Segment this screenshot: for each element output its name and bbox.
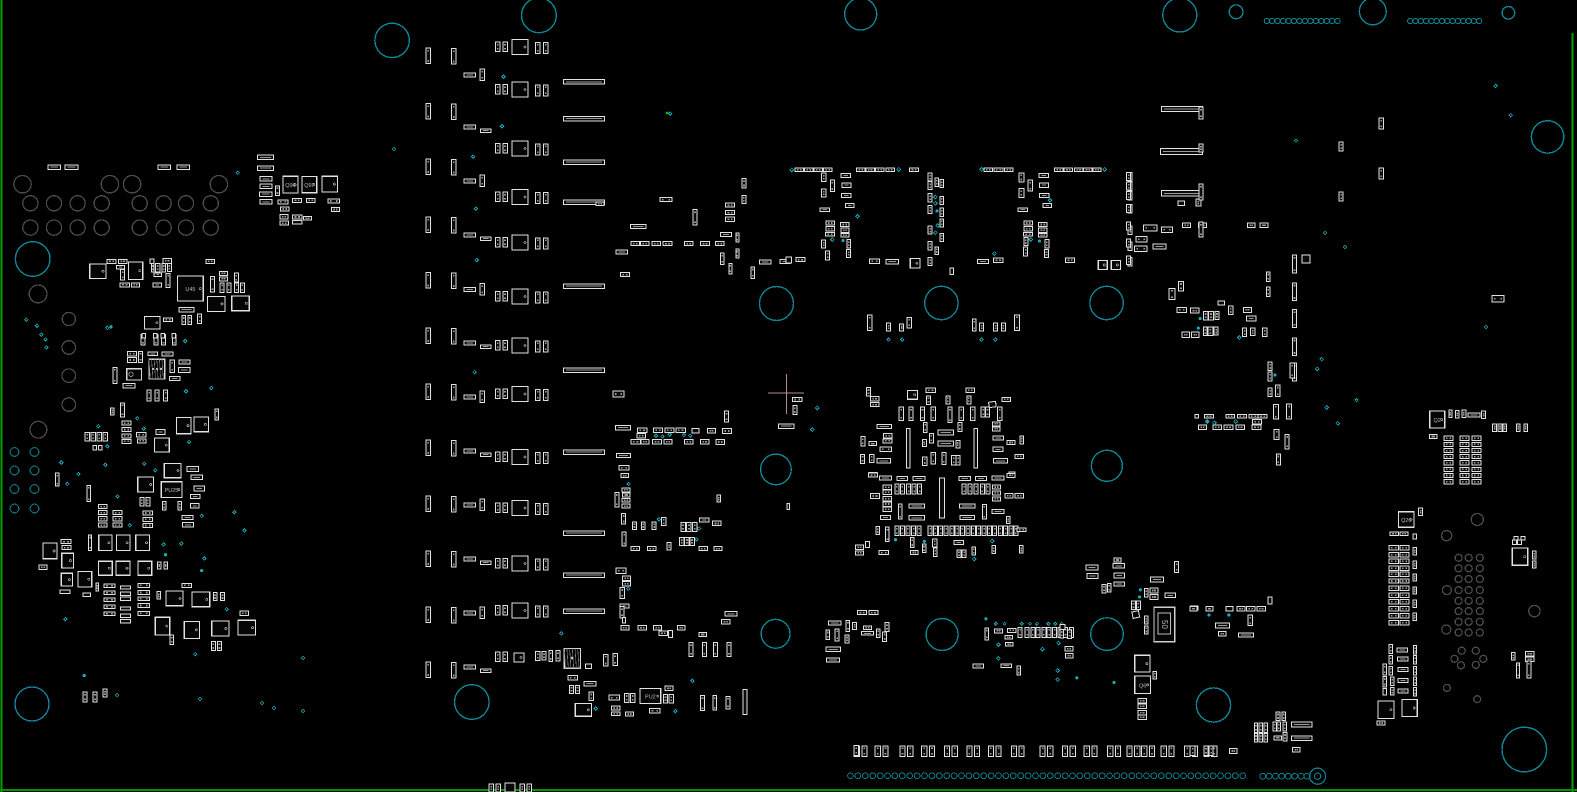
svg-text:PU25: PU25 bbox=[165, 488, 179, 494]
svg-text:Q97: Q97 bbox=[304, 183, 314, 189]
svg-text:Q6: Q6 bbox=[1139, 683, 1146, 689]
svg-text:Q26: Q26 bbox=[1401, 518, 1411, 524]
svg-text:U45: U45 bbox=[185, 287, 195, 293]
svg-text:50: 50 bbox=[1160, 620, 1169, 629]
svg-text:PU2: PU2 bbox=[645, 695, 656, 701]
svg-text:Q96: Q96 bbox=[285, 183, 295, 189]
svg-text:Q2: Q2 bbox=[1434, 418, 1441, 424]
